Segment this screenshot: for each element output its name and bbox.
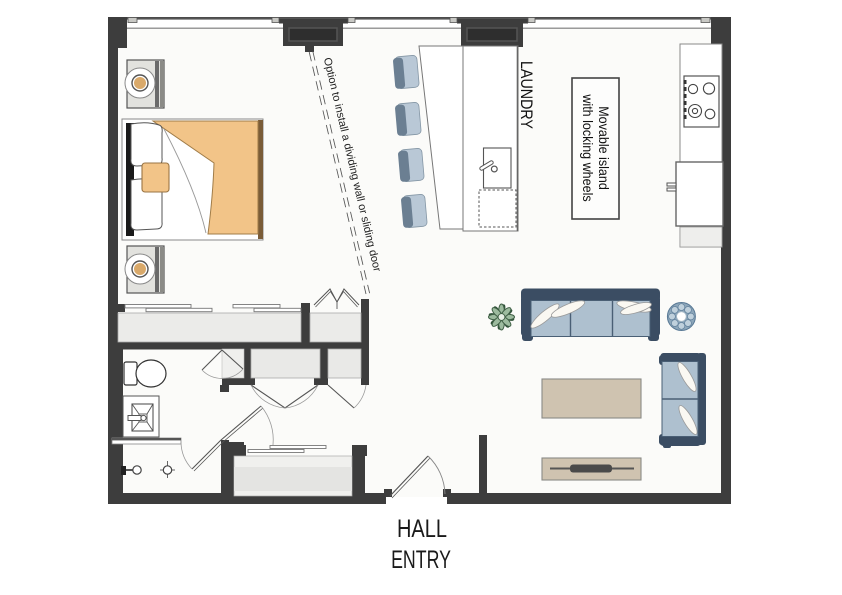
svg-text:Movable island: Movable island	[596, 106, 612, 190]
svg-text:ENTRY: ENTRY	[391, 545, 451, 574]
svg-text:HALL: HALL	[397, 515, 447, 543]
svg-text:LAUNDRY: LAUNDRY	[517, 61, 535, 129]
svg-text:with locking wheels: with locking wheels	[580, 93, 596, 202]
